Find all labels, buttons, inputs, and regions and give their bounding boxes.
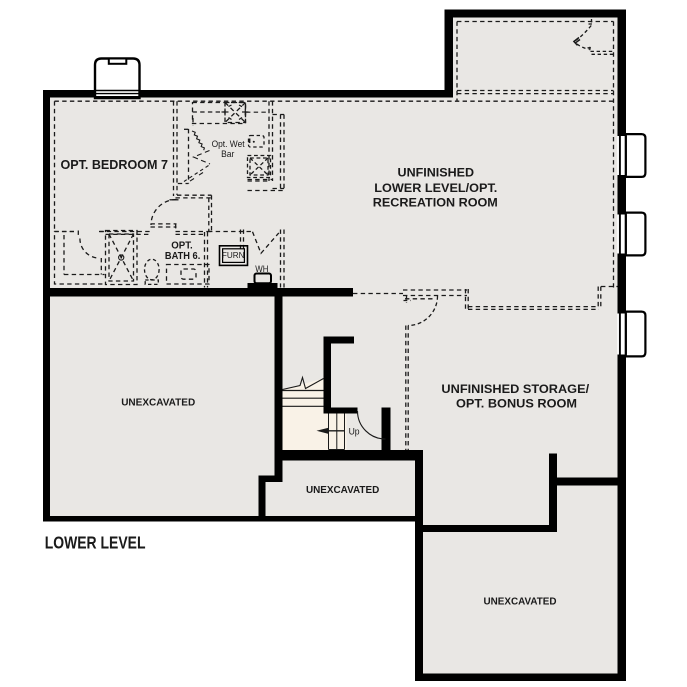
svg-text:LOWER LEVEL: LOWER LEVEL — [45, 533, 146, 553]
svg-text:UNEXCAVATED: UNEXCAVATED — [121, 398, 195, 409]
svg-text:BATH 6.: BATH 6. — [165, 251, 201, 262]
svg-text:UNFINISHED: UNFINISHED — [398, 167, 475, 180]
svg-text:UNFINISHED STORAGE/: UNFINISHED STORAGE/ — [441, 382, 589, 396]
svg-text:UNEXCAVATED: UNEXCAVATED — [306, 485, 380, 496]
svg-text:RECREATION ROOM: RECREATION ROOM — [373, 196, 498, 209]
svg-text:Up: Up — [349, 426, 360, 436]
svg-text:Bar: Bar — [221, 149, 234, 159]
svg-text:OPT. BEDROOM 7: OPT. BEDROOM 7 — [60, 157, 168, 172]
svg-text:OPT. BONUS ROOM: OPT. BONUS ROOM — [456, 397, 577, 411]
svg-text:OPT.: OPT. — [171, 240, 193, 251]
svg-text:FURN: FURN — [222, 250, 245, 260]
svg-text:LOWER LEVEL/OPT.: LOWER LEVEL/OPT. — [374, 182, 497, 195]
svg-text:UNEXCAVATED: UNEXCAVATED — [484, 597, 557, 608]
svg-text:Opt. Wet: Opt. Wet — [212, 139, 245, 149]
